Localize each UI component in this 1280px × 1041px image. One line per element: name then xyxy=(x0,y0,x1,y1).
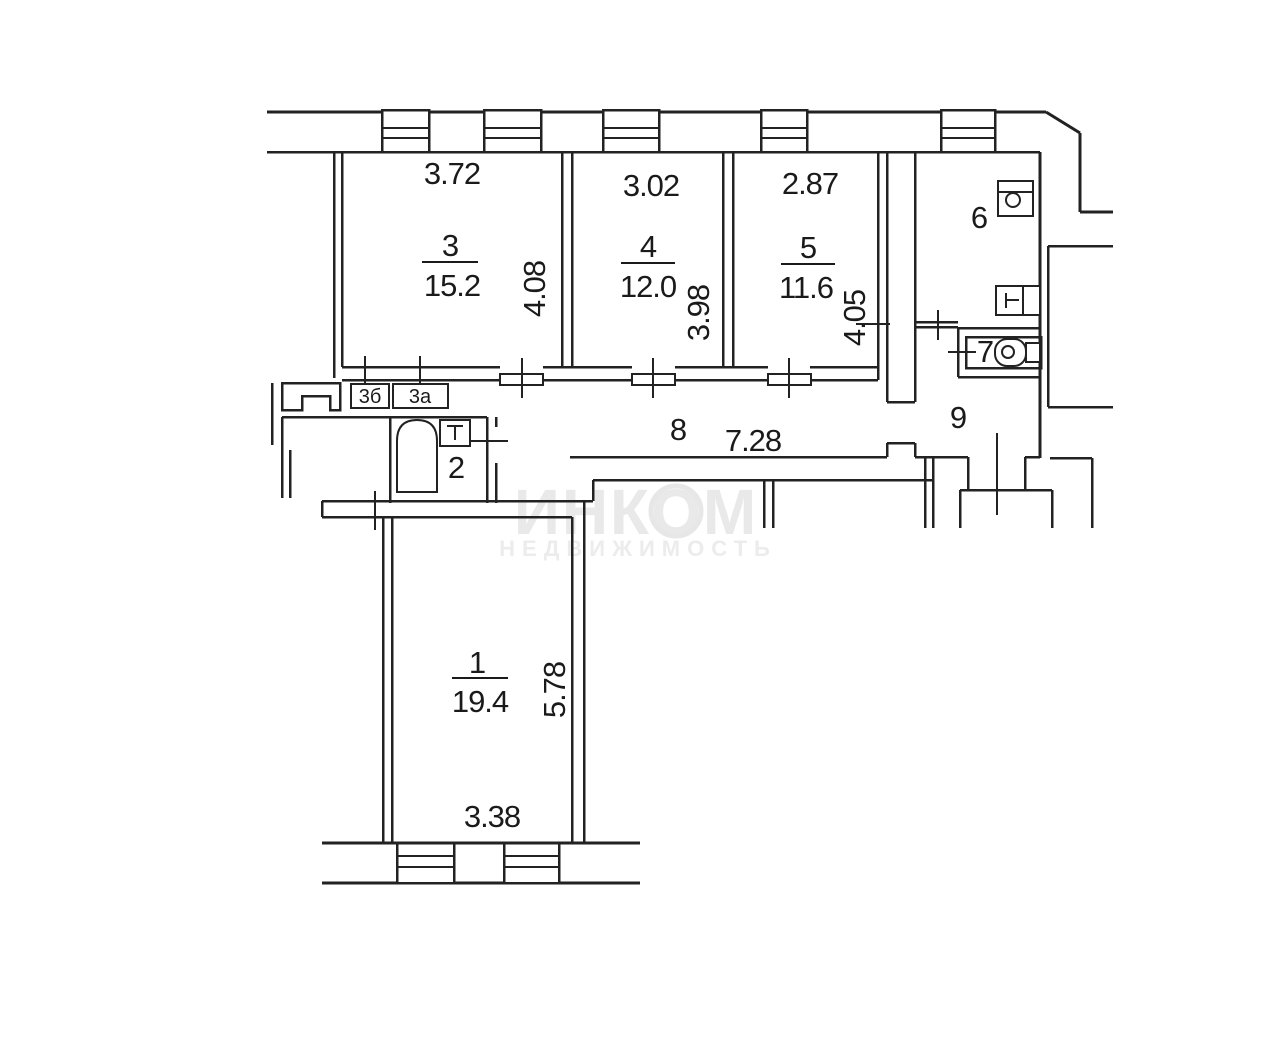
bathroom xyxy=(385,417,508,503)
window-icon xyxy=(382,110,429,152)
watermark-subtitle: НЕДВИЖИМОСТЬ xyxy=(499,536,777,561)
window-icon xyxy=(504,843,559,883)
floor-plan-drawing: ИНКОМ НЕДВИЖИМОСТЬ xyxy=(0,0,1280,1041)
closet-3a-label: 3а xyxy=(409,386,432,408)
room5-depth-dim: 4.05 xyxy=(837,290,872,346)
toilet-icon xyxy=(1002,346,1014,358)
room4-width-dim: 3.02 xyxy=(623,168,679,203)
room1-width-dim: 3.38 xyxy=(464,799,520,834)
room3-number: 3 xyxy=(442,228,458,263)
closet-3b-label: 3б xyxy=(359,386,382,408)
room5-number: 5 xyxy=(800,230,816,265)
room4-area: 12.0 xyxy=(620,269,677,304)
wall-chamfer xyxy=(1046,112,1080,133)
floor-plan: ИНКОМ НЕДВИЖИМОСТЬ xyxy=(0,0,1280,1041)
room8-length-dim: 7.28 xyxy=(725,423,781,458)
room4-number: 4 xyxy=(640,229,657,264)
window-icon xyxy=(761,110,807,152)
room3-area: 15.2 xyxy=(424,268,480,303)
room4-depth-dim: 3.98 xyxy=(681,285,716,341)
room3-depth-dim: 4.08 xyxy=(517,261,552,317)
room1-depth-dim: 5.78 xyxy=(537,662,572,718)
room9-number: 9 xyxy=(950,400,966,435)
toilet-tank-icon xyxy=(1026,343,1040,362)
room1-area: 19.4 xyxy=(452,684,509,719)
window-icon xyxy=(484,110,541,152)
room8-number: 8 xyxy=(670,412,686,447)
stair-landing xyxy=(282,383,340,410)
room5-width-dim: 2.87 xyxy=(782,166,838,201)
room7-number: 7 xyxy=(977,334,993,369)
bathtub-icon xyxy=(397,420,437,492)
room6-number: 6 xyxy=(971,200,987,235)
kitchen-sink-icon xyxy=(1006,193,1020,207)
room2-number: 2 xyxy=(448,450,464,485)
watermark: ИНКОМ НЕДВИЖИМОСТЬ xyxy=(499,476,777,561)
room5-area: 11.6 xyxy=(779,270,833,305)
window-icon xyxy=(603,110,659,152)
window-icon xyxy=(397,843,454,883)
room3-width-dim: 3.72 xyxy=(424,156,480,191)
window-icon xyxy=(941,110,995,152)
room1-number: 1 xyxy=(469,645,485,680)
